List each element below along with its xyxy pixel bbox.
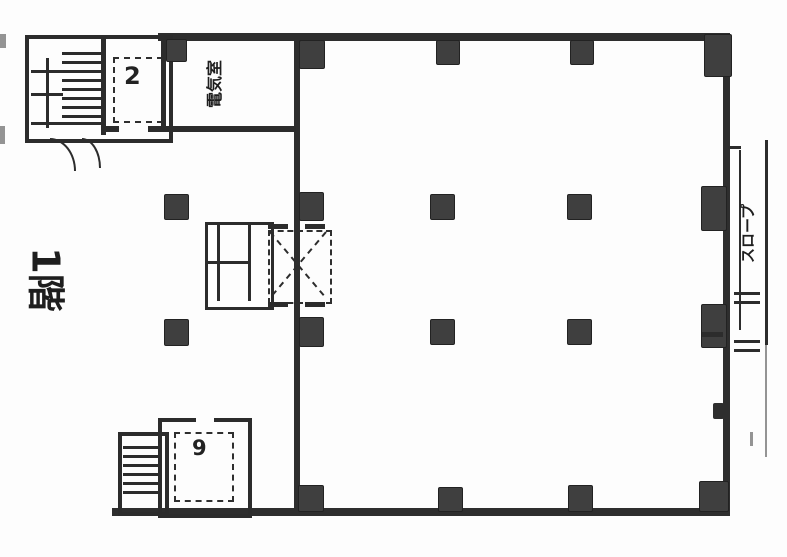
column	[166, 39, 187, 62]
doorway-gap	[196, 416, 214, 424]
stair-rail-tick	[31, 93, 63, 96]
column	[567, 194, 592, 220]
door-mark	[713, 403, 724, 419]
shaft-stub	[305, 224, 325, 229]
column	[299, 192, 324, 221]
wall-sill-stub	[702, 332, 723, 337]
column-corner	[704, 34, 732, 77]
column	[430, 319, 455, 345]
stair-landing-line	[31, 122, 103, 125]
ramp-step-mark	[734, 292, 760, 295]
ramp-top-tick	[728, 146, 741, 149]
lower-small-room-mark: 9	[192, 436, 207, 460]
shaft-stub	[305, 302, 325, 307]
elevator-car-line	[208, 261, 251, 264]
column	[299, 317, 324, 347]
column	[430, 194, 455, 220]
scan-artifact	[0, 126, 5, 144]
wall-stub	[101, 126, 119, 132]
column	[164, 319, 189, 346]
column-corner	[699, 481, 729, 512]
wall-right	[723, 36, 730, 514]
scan-artifact	[0, 34, 6, 48]
ramp-tick	[750, 432, 753, 446]
shaft-stub	[268, 224, 288, 229]
column	[164, 194, 189, 220]
column	[298, 485, 324, 512]
shaft-stub	[268, 302, 288, 307]
ramp-line-continuation	[765, 345, 767, 457]
ramp-step-mark	[734, 340, 760, 343]
elevator-car	[205, 222, 274, 310]
floor-plan: 2 電気室 1階	[0, 0, 787, 557]
column	[570, 40, 594, 65]
stair-rail-tick	[31, 70, 63, 73]
ramp-step-mark	[734, 301, 760, 304]
column	[568, 485, 593, 512]
ramp-line-outer	[765, 140, 768, 345]
stair-treads-lower	[123, 446, 159, 496]
column	[436, 40, 460, 65]
top-room-bottom-wall	[161, 126, 296, 132]
column	[438, 487, 463, 512]
column	[701, 186, 727, 231]
ramp-step-mark	[734, 349, 760, 352]
upper-small-room-mark: 2	[124, 62, 141, 90]
top-room-label: 電気室	[196, 46, 230, 122]
floor-label: 1階	[16, 234, 82, 324]
column	[299, 40, 325, 69]
elevator-shaft-x	[268, 230, 328, 300]
column	[701, 304, 727, 348]
stair-treads-upper	[62, 52, 103, 118]
column	[567, 319, 592, 345]
ramp-label: スロープ	[734, 168, 762, 298]
